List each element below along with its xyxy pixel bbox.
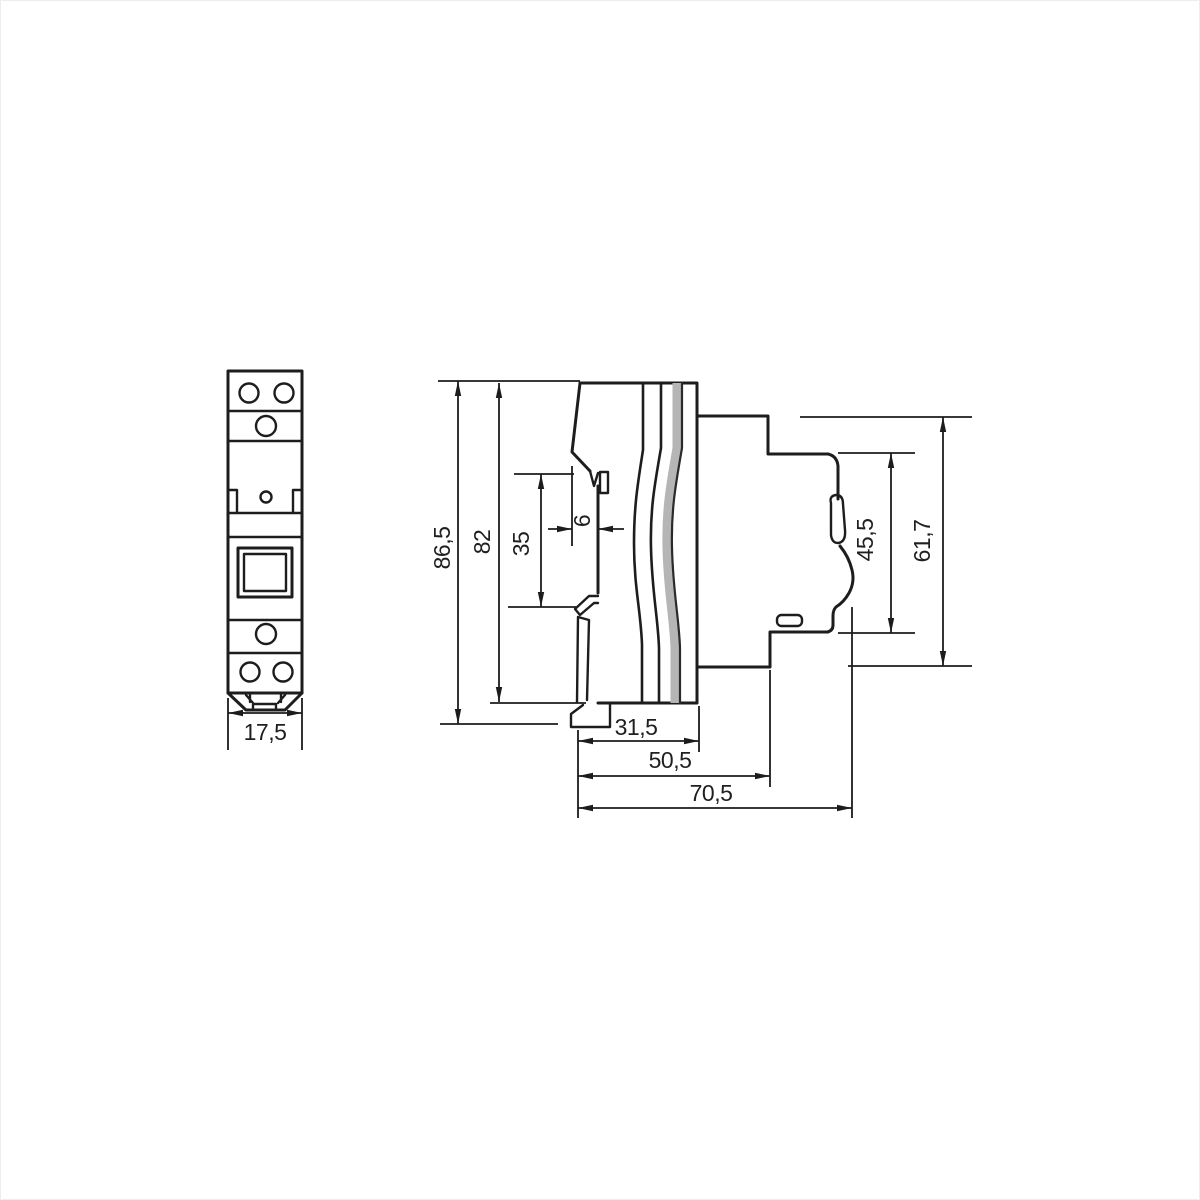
- dim-front-face-height: 45,5: [838, 453, 915, 633]
- dim-label-front-width: 17,5: [244, 719, 287, 745]
- side-step-top: [697, 416, 828, 454]
- din-spring-clip: [577, 617, 589, 702]
- terminal-hole: [256, 624, 276, 644]
- side-step-bottom: [697, 632, 828, 667]
- dim-label-rail-hook-depth: 6: [569, 515, 595, 527]
- terminal-hole: [240, 384, 259, 403]
- dim-depth-rear: 31,5: [578, 706, 699, 752]
- dim-label-depth-rear: 31,5: [615, 714, 658, 740]
- terminal-hole: [256, 416, 276, 436]
- dim-label-overall-height: 86,5: [429, 527, 455, 570]
- dim-overall-height: 86,5: [429, 381, 580, 724]
- fixing-hole: [261, 492, 272, 503]
- indicator-window-outer: [238, 548, 292, 597]
- terminal-hole: [241, 663, 260, 682]
- dim-label-front-section-height: 61,7: [909, 520, 935, 563]
- front-face-upper: [828, 454, 838, 499]
- din-clip-foot: [571, 703, 610, 727]
- dim-label-depth-total: 70,5: [690, 780, 733, 806]
- technical-drawing-page: 86,5 82 35 6 45,5: [0, 0, 1200, 1200]
- indicator-window-inner: [244, 554, 286, 591]
- dimensions: 86,5 82 35 6 45,5: [228, 381, 972, 818]
- dim-rail-slot-height: 35: [508, 474, 576, 607]
- face-slot: [777, 615, 802, 626]
- din-hook-upper: [590, 471, 598, 486]
- dim-depth-total: 70,5: [578, 607, 852, 818]
- case-seam-line: [651, 383, 661, 703]
- din-hook-tab: [600, 472, 608, 493]
- front-view: [228, 371, 302, 710]
- dim-label-front-face-height: 45,5: [852, 519, 878, 562]
- terminal-hole: [274, 663, 293, 682]
- toggle-lever: [831, 495, 846, 543]
- bottom-taper: [228, 693, 302, 710]
- side-back-edge: [572, 383, 590, 471]
- dim-label-depth-mid: 50,5: [649, 747, 692, 773]
- dim-label-body-height: 82: [469, 530, 495, 555]
- technical-drawing: 86,5 82 35 6 45,5: [0, 0, 1200, 1200]
- side-view: [571, 383, 853, 727]
- dim-rail-hook-depth: 6: [548, 466, 624, 546]
- case-seam-line: [634, 383, 643, 703]
- din-claw-lower: [575, 596, 598, 615]
- bottom-clip-detail: [246, 693, 285, 710]
- dim-label-rail-slot-height: 35: [508, 532, 534, 557]
- terminal-hole: [275, 384, 294, 403]
- front-face-lower: [827, 546, 853, 632]
